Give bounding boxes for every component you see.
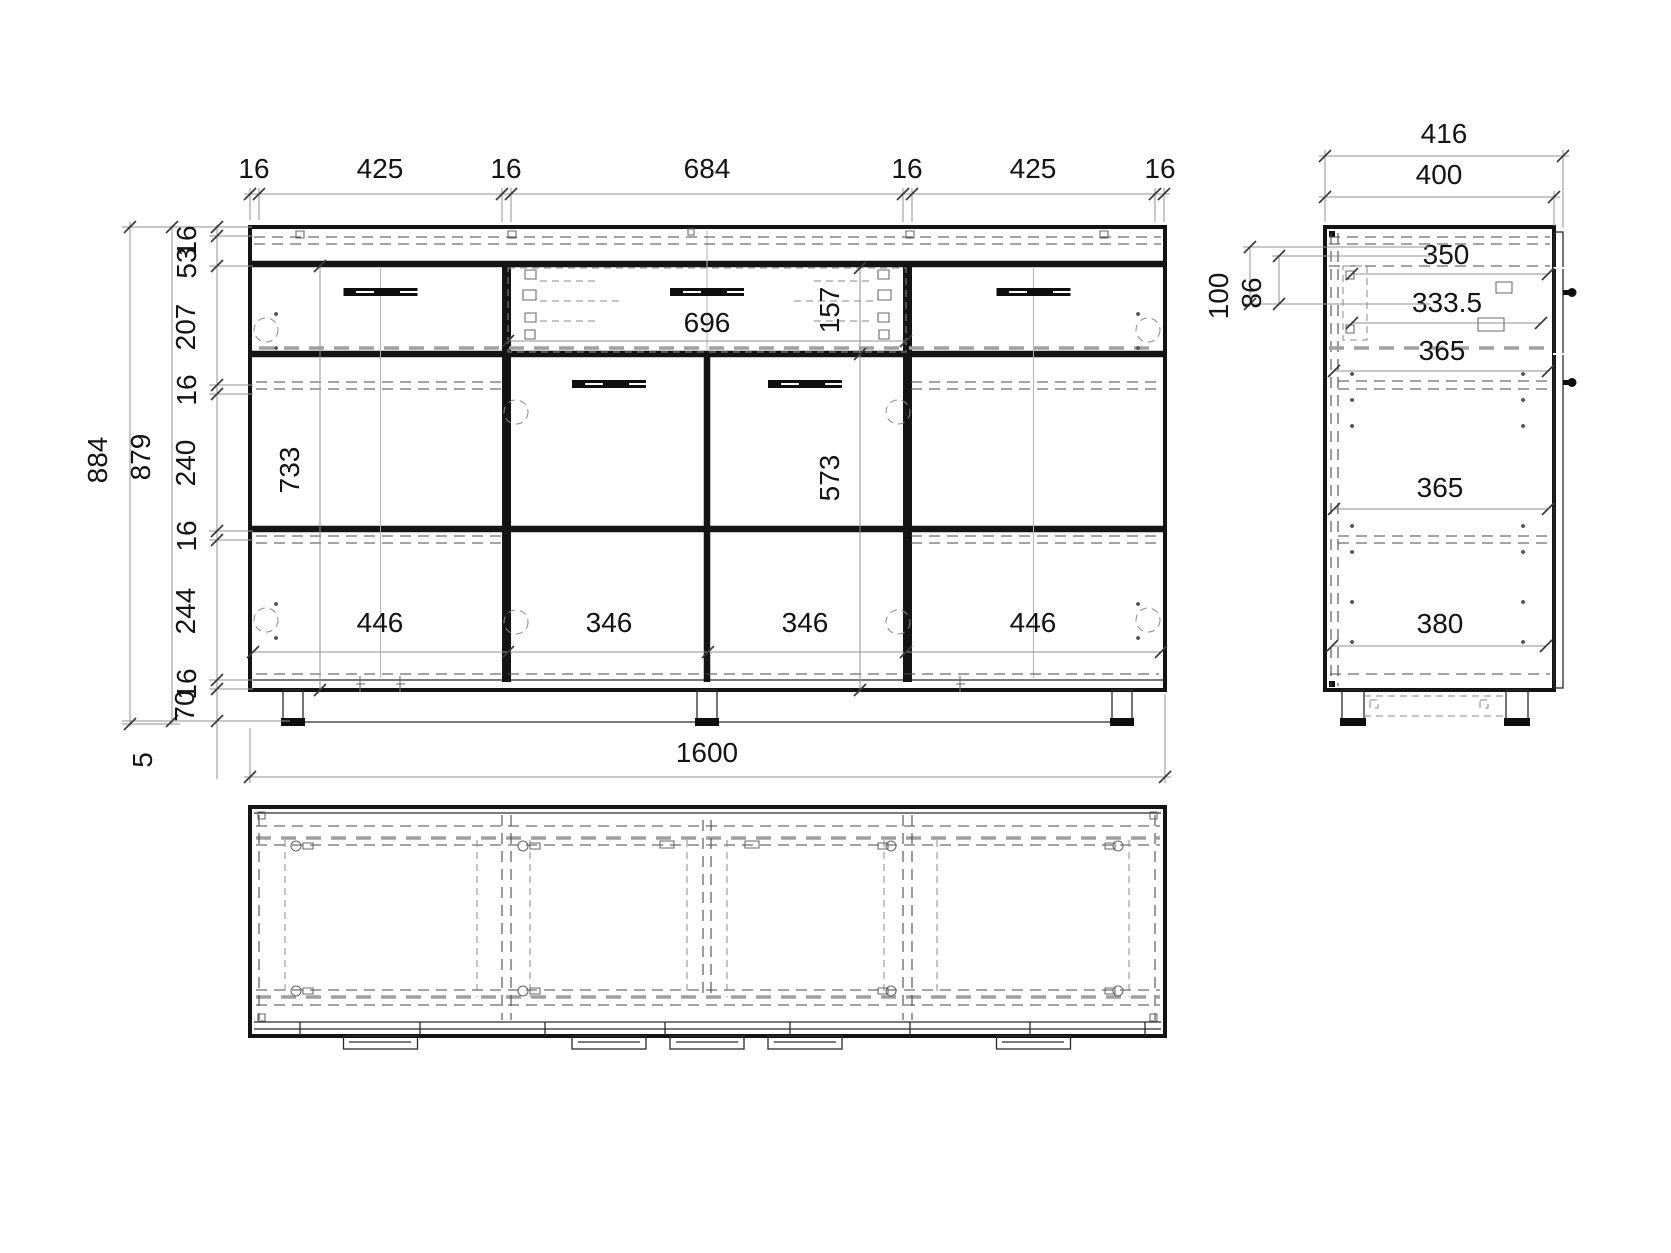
hinge-icon (1136, 318, 1160, 342)
hinge-icon (518, 841, 528, 851)
dim-label: 157 (814, 287, 845, 334)
dim-label: 573 (814, 455, 845, 502)
foot-pad (1110, 718, 1134, 726)
plan-thin-hidden (256, 826, 1160, 1005)
side-back-panel-hidden (1331, 233, 1338, 686)
dim-label: 400 (1416, 159, 1463, 190)
dim-label: 333.5 (1412, 287, 1482, 318)
foot (1112, 690, 1132, 720)
dim-label: 240 (170, 440, 201, 487)
foot-pad (281, 718, 305, 726)
hinge-icon (291, 841, 301, 851)
dim-label: 346 (586, 607, 633, 638)
foot (283, 690, 303, 720)
knob-stems (1563, 290, 1569, 385)
front-view: 16 425 16 684 16 425 16 884 879 16 53 20… (82, 153, 1176, 783)
plan-view (250, 807, 1165, 1049)
hinge-icon (1136, 608, 1160, 632)
hinge-icon (291, 986, 301, 996)
dim-label: 207 (170, 304, 201, 351)
dim-label: 365 (1419, 335, 1466, 366)
plan-hidden-lines (256, 812, 1160, 1021)
left-dim-lines (122, 222, 290, 779)
shelf-pin-holes (1350, 372, 1525, 644)
corner-dot (1329, 231, 1335, 237)
dim-label: 70 (169, 690, 200, 721)
dim-label: 100 (1203, 273, 1234, 320)
dim-label: 346 (782, 607, 829, 638)
side-interior-ticks (1326, 268, 1554, 652)
handle-knob-icon (1568, 378, 1577, 387)
dim-label: 884 (82, 437, 113, 484)
side-left-dim-lines (1243, 247, 1430, 304)
foot (1506, 690, 1528, 720)
foot-pad (695, 718, 719, 726)
dim-label: 16 (171, 520, 202, 551)
plan-structure (250, 807, 1165, 1036)
top-chain-lines (244, 188, 1170, 222)
dim-label: 380 (1417, 608, 1464, 639)
dim-label: 16 (238, 153, 269, 184)
hinge-arm-fittings (303, 841, 1115, 994)
front-feet (281, 690, 1134, 726)
plan-body-outline (250, 807, 1165, 1036)
foot (1342, 690, 1364, 720)
dim-label: 16 (1144, 153, 1175, 184)
dim-label: 425 (357, 153, 404, 184)
dim-label: 16 (171, 374, 202, 405)
foot (697, 690, 717, 720)
dim-label: 446 (357, 607, 404, 638)
plan-partition-hidden (259, 815, 1155, 1020)
plan-door-edges-hidden (285, 840, 1129, 997)
dim-label: 350 (1423, 239, 1470, 270)
dim-label: 446 (1010, 607, 1057, 638)
corner-dot (1329, 681, 1335, 687)
side-view: 416 400 350 333.5 365 365 380 100 86 (1203, 118, 1577, 726)
plinth-side-hidden (1364, 696, 1506, 716)
side-feet (1340, 690, 1530, 726)
dim-label: 16 (490, 153, 521, 184)
hinge-icon (254, 608, 278, 632)
plan-heavy-hidden (256, 838, 1160, 997)
foot-pad (1504, 718, 1530, 726)
dim-label: 684 (684, 153, 731, 184)
side-interior-dim-lines (1332, 274, 1548, 646)
plan-hinge-fittings (291, 841, 1123, 996)
technical-drawing-page: 16 425 16 684 16 425 16 884 879 16 53 20… (0, 0, 1671, 1253)
dim-label: 5 (127, 752, 158, 768)
dim-label: 733 (274, 447, 305, 494)
cabinet-technical-drawing: 16 425 16 684 16 425 16 884 879 16 53 20… (0, 0, 1671, 1253)
dim-label: 16 (891, 153, 922, 184)
dim-label: 879 (125, 434, 156, 481)
foot-pad (1340, 718, 1366, 726)
dim-label: 416 (1421, 118, 1468, 149)
side-knobs (1563, 288, 1577, 387)
dim-label: 1600 (676, 737, 738, 768)
dim-label: 244 (170, 588, 201, 635)
handle-highlights (356, 292, 1071, 384)
hinge-icon (254, 318, 278, 342)
front-fittings (296, 229, 1108, 692)
side-dimensions: 416 400 350 333.5 365 365 380 100 86 (1203, 118, 1569, 652)
hinge-icon (518, 986, 528, 996)
dim-label: 425 (1010, 153, 1057, 184)
handle-knob-icon (1568, 288, 1577, 297)
dim-label: 86 (1236, 277, 1267, 308)
dim-label: 53 (171, 247, 202, 278)
dim-label: 696 (684, 307, 731, 338)
dim-label: 365 (1417, 472, 1464, 503)
